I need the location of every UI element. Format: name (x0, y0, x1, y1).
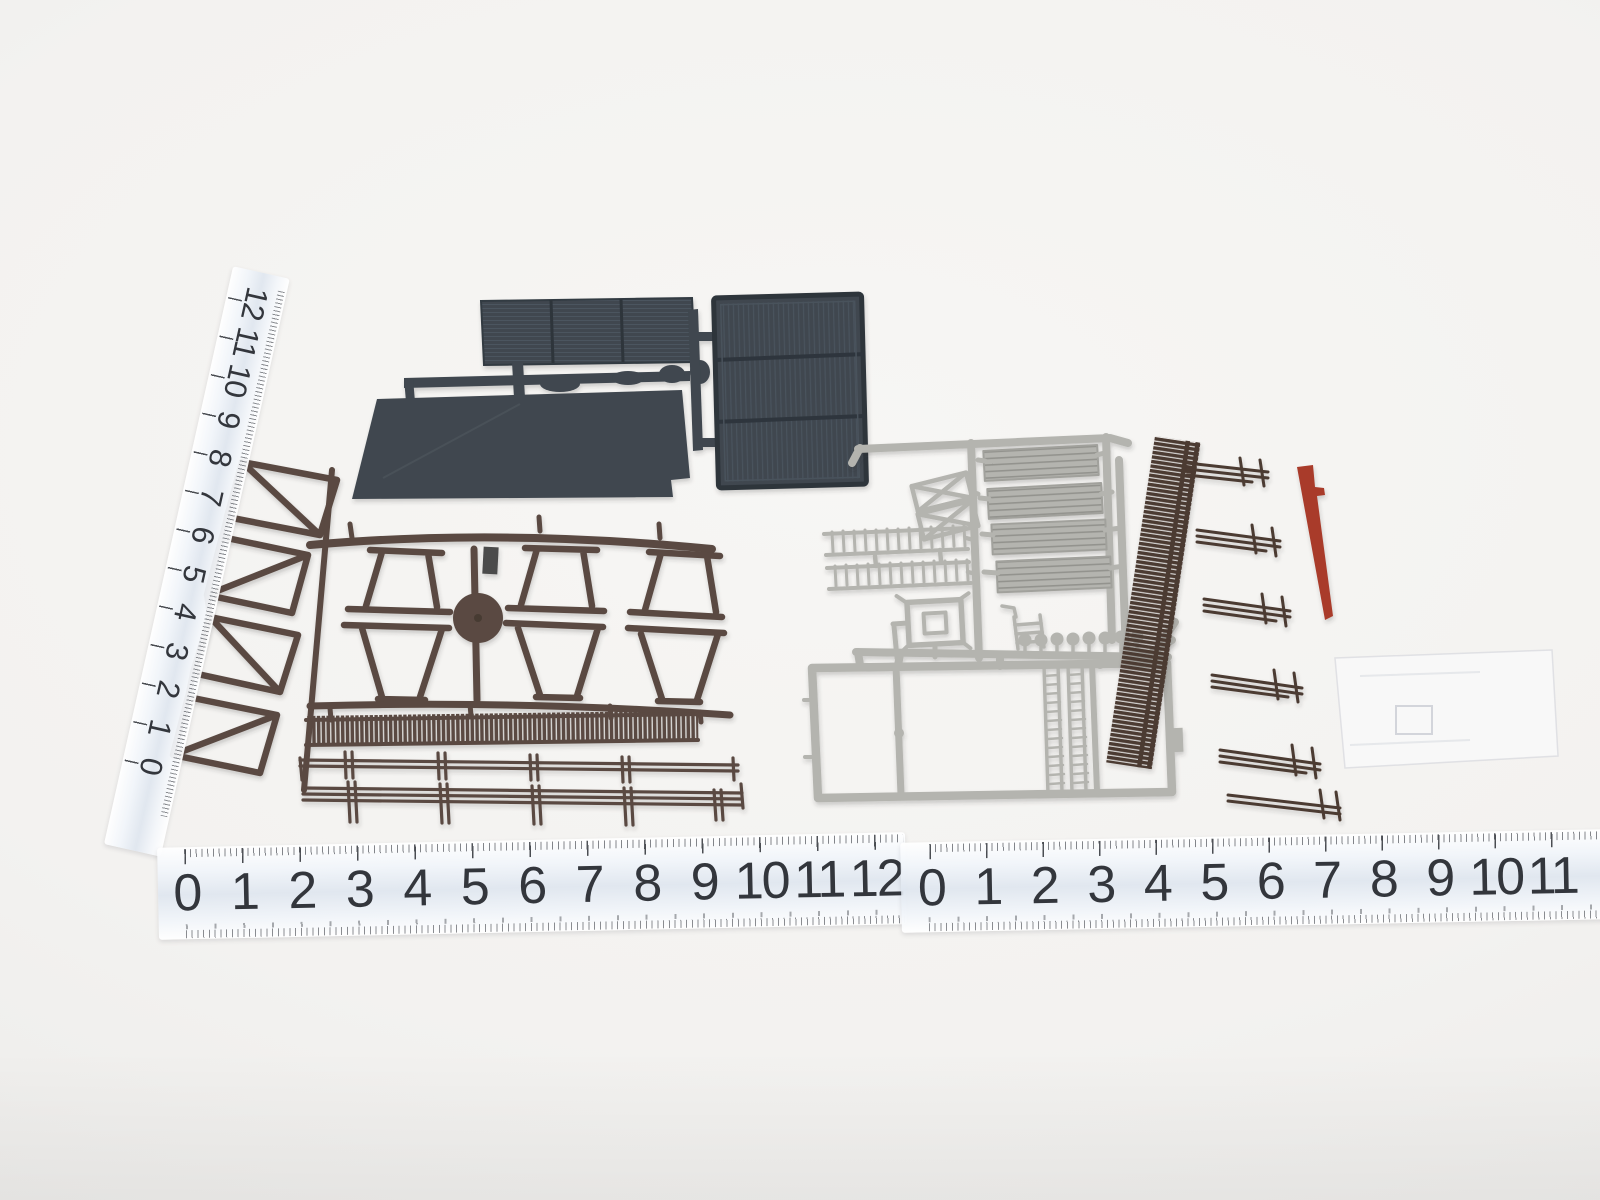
disc-hub (474, 614, 482, 622)
ruler-number: 0 (902, 857, 960, 920)
ruler-number: 8 (1354, 848, 1412, 911)
ruler-number: 10 (1467, 846, 1525, 909)
ruler-number: 0 (157, 862, 216, 925)
sprue-blob (540, 376, 580, 392)
clear-glazing-part (1335, 650, 1558, 768)
roof-panel-ribbed (481, 298, 695, 365)
ruler-number: 12 (847, 847, 906, 910)
red-signal-arm (1297, 465, 1333, 620)
sprue-blob (612, 371, 644, 385)
ruler-number: 1 (959, 856, 1017, 919)
ruler-number: 0 (126, 734, 177, 799)
ruler-number: 8 (617, 852, 676, 915)
door-panel (714, 294, 867, 488)
dark-gray-panel-sprue (352, 294, 866, 499)
ruler-number: 3 (330, 858, 389, 921)
sprue-blob (659, 365, 685, 383)
rail-fence-row-1 (300, 752, 738, 782)
ruler-number: 11 (790, 848, 849, 911)
ladder-horizontal-1 (824, 526, 968, 555)
brown-frame-sprue (173, 462, 743, 825)
trapezoid-frames (344, 548, 724, 702)
ruler-number: 2 (272, 859, 331, 922)
ruler-number: 9 (1411, 847, 1469, 910)
bottom-left-ruler: 0123456789101112 (157, 832, 907, 940)
ruler-number: 9 (675, 851, 734, 914)
bottom-right-ruler: 01234567891011 (900, 829, 1600, 933)
ruler-number: 7 (560, 853, 619, 916)
roof-panel-plain (352, 390, 690, 499)
ruler-number: 10 (732, 850, 791, 913)
ruler-number: 4 (1128, 852, 1186, 915)
walkway-planks (983, 445, 1111, 592)
ruler-number: 11 (1524, 845, 1582, 908)
sprue-scene (0, 0, 1600, 1200)
ruler-number: 7 (1298, 849, 1356, 912)
ruler-number: 5 (1185, 851, 1243, 914)
ruler-number: 5 (445, 856, 504, 919)
ruler-number: 6 (1241, 850, 1299, 913)
ruler-number: 3 (1072, 853, 1130, 916)
ruler-number: 6 (502, 854, 561, 917)
ruler-number: 2 (1015, 854, 1073, 917)
rail-fence-row-2 (303, 782, 743, 825)
ruler-number: 4 (387, 857, 446, 920)
frame-ladder-2 (1068, 664, 1088, 792)
square-frame-part (893, 592, 971, 658)
flat-tab (482, 547, 498, 575)
frame-ladder-1 (1044, 665, 1064, 793)
ruler-number: 1 (215, 860, 274, 923)
